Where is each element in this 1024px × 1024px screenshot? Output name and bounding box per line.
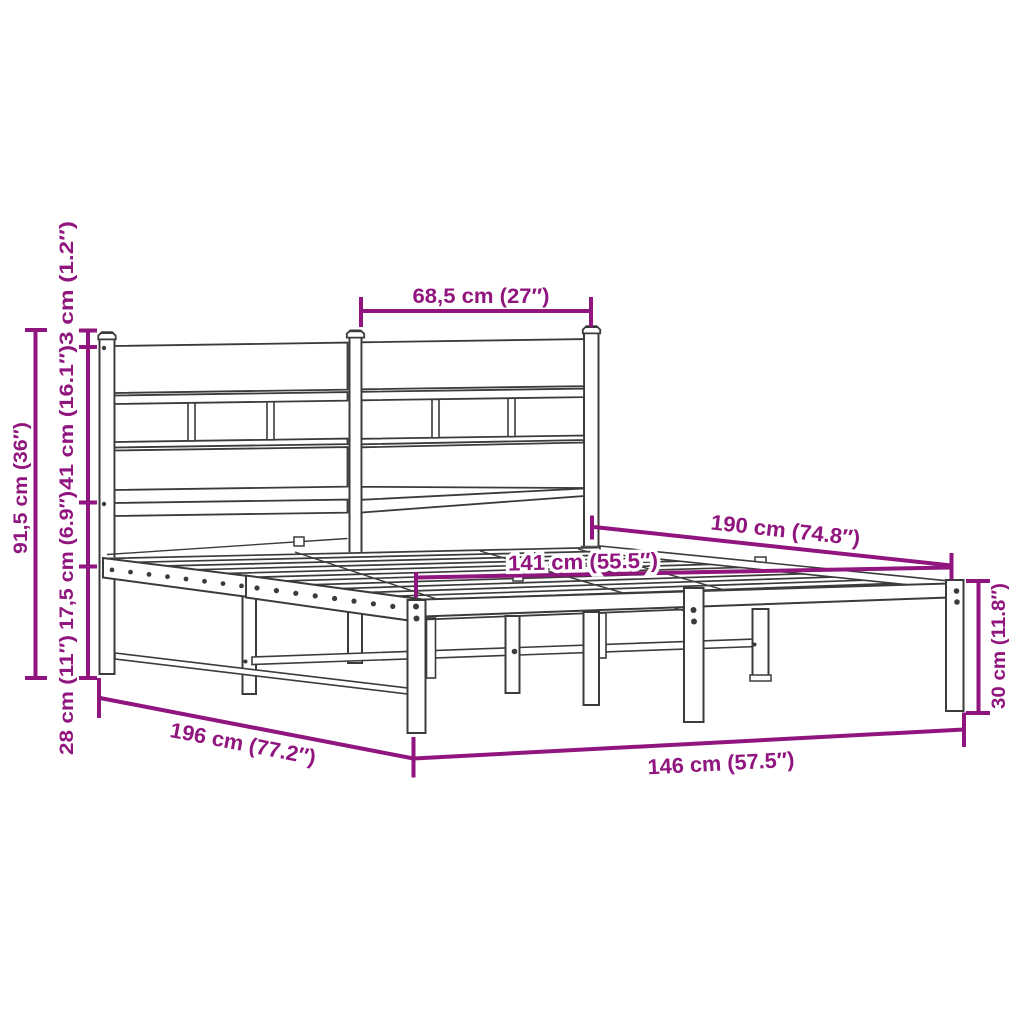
- svg-text:3 cm (1.2″): 3 cm (1.2″): [56, 221, 78, 345]
- svg-text:41 cm (16.1″): 41 cm (16.1″): [56, 345, 78, 490]
- svg-text:91,5 cm (36″): 91,5 cm (36″): [10, 422, 32, 554]
- svg-text:30 cm (11.8″): 30 cm (11.8″): [988, 583, 1010, 709]
- svg-text:28 cm (11″): 28 cm (11″): [56, 635, 78, 755]
- svg-text:68,5 cm (27″): 68,5 cm (27″): [413, 284, 550, 308]
- svg-text:141 cm (55.5″): 141 cm (55.5″): [508, 548, 658, 575]
- svg-text:17,5 cm (6.9″): 17,5 cm (6.9″): [56, 491, 78, 630]
